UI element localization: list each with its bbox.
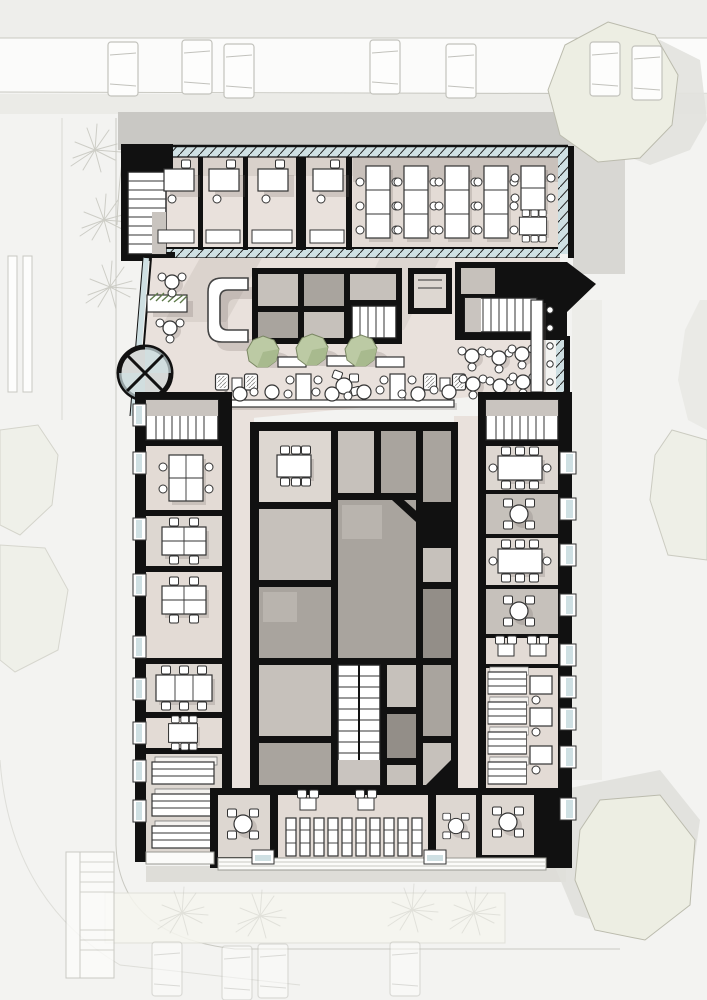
bench: [376, 357, 404, 367]
cabinet: [206, 230, 240, 243]
shelf-unit: [488, 757, 528, 784]
lounge-armchair: [245, 374, 258, 390]
meeting-table: [277, 446, 314, 486]
core-room: [259, 743, 331, 785]
storage-shelf: [152, 821, 217, 848]
core-room: [338, 431, 374, 493]
glazed-facade-band-east: [558, 146, 574, 258]
parked-car: [222, 946, 252, 1000]
parked-car: [632, 46, 662, 100]
storage-shelf: [152, 757, 217, 784]
parked-car: [590, 42, 620, 96]
core-room: [423, 665, 451, 736]
glazed-facade-north: [148, 146, 568, 157]
floor-plan-drawing: [0, 0, 707, 1000]
shelf-unit: [488, 727, 528, 754]
core-room: [387, 714, 416, 758]
left-wing-stair: [146, 400, 218, 440]
revolving-door-icon: [119, 347, 171, 399]
service-core: [250, 422, 458, 792]
focus-desk: [530, 676, 552, 774]
terrace-step: [146, 852, 214, 864]
open-office: [356, 166, 555, 242]
core-room: [423, 431, 451, 502]
lounge-armchair: [216, 374, 229, 390]
parked-car: [258, 944, 288, 998]
parked-car: [370, 40, 400, 94]
cafe-table: [296, 374, 311, 400]
floor-plan-canvas: [0, 0, 707, 1000]
planting-strip-south: [105, 893, 505, 943]
parked-car: [152, 942, 182, 996]
parked-car: [446, 44, 476, 98]
glazed-facade-lobby-east: [556, 336, 570, 398]
core-room: [387, 665, 416, 707]
core-room: [259, 509, 331, 580]
core-room: [381, 431, 416, 493]
external-stair: [66, 852, 114, 978]
parked-car: [108, 42, 138, 96]
shelf-unit: [488, 697, 528, 724]
glazed-facade-band-south: [150, 248, 560, 258]
building-shadow-east: [573, 146, 625, 274]
top-band: [121, 144, 574, 261]
right-wing-stair: [486, 400, 558, 440]
core-room: [423, 548, 451, 582]
storage-shelf: [152, 789, 217, 816]
meeting-table: [169, 716, 200, 750]
shelf-unit: [488, 667, 528, 694]
core-stair: [338, 665, 380, 785]
cabinet: [252, 230, 292, 243]
corridor-east: [454, 416, 482, 792]
core-room: [259, 665, 331, 736]
core-upper-stair: [352, 306, 396, 338]
meeting-table: [519, 210, 549, 242]
parked-car: [390, 942, 420, 996]
parked-car: [224, 44, 254, 98]
cabinet: [310, 230, 344, 243]
team-desk: [156, 666, 215, 710]
core-room: [387, 765, 416, 785]
cabinet: [158, 230, 194, 243]
core-room: [423, 589, 451, 658]
parked-car: [182, 40, 212, 94]
